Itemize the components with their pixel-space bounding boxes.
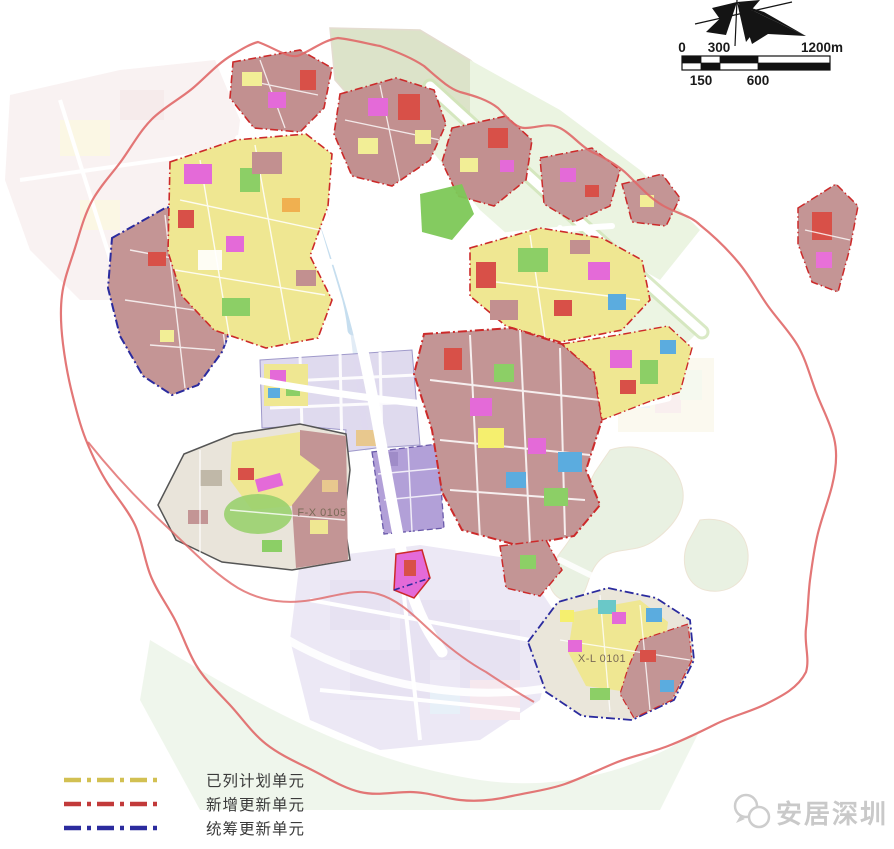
scale-label-150: 150 bbox=[690, 73, 713, 88]
unit-label-fx0105: F-X 0105 bbox=[297, 507, 346, 519]
coordinated-renewal-unit-line-swatch bbox=[60, 822, 164, 834]
scale-label-1200m: 1200m bbox=[801, 40, 843, 55]
new-renewal-unit-line-swatch bbox=[60, 798, 164, 810]
anju-shenzhen-logo-icon bbox=[728, 790, 776, 834]
cluster-far-east bbox=[798, 184, 858, 292]
legend-item-new-renewal-units: 新增更新单元 bbox=[60, 794, 305, 814]
legend-label: 统筹更新单元 bbox=[206, 817, 305, 839]
planning-map: F-X 0105 X-L 0101 0 300 1200m 150 600 bbox=[0, 0, 894, 849]
watermark: 安居深圳 bbox=[728, 790, 888, 834]
urban-renewal-planning-map-page: F-X 0105 X-L 0101 0 300 1200m 150 600 已列 bbox=[0, 0, 894, 849]
legend-item-planned-units: 已列计划单元 bbox=[60, 770, 305, 790]
unit-label-xl0101: X-L 0101 bbox=[578, 653, 626, 665]
legend-item-coordinated-renewal-units: 统筹更新单元 bbox=[60, 818, 305, 838]
scale-label-600: 600 bbox=[747, 73, 770, 88]
scale-label-0: 0 bbox=[678, 40, 686, 55]
watermark-text: 安居深圳 bbox=[776, 794, 888, 831]
planned-unit-line-swatch bbox=[60, 774, 164, 786]
legend-label: 新增更新单元 bbox=[206, 793, 305, 815]
cluster-north-top bbox=[230, 50, 332, 132]
map-legend: 已列计划单元 新增更新单元 统筹更新单元 bbox=[60, 770, 305, 838]
cluster-west-central bbox=[158, 424, 350, 570]
legend-label: 已列计划单元 bbox=[206, 769, 305, 791]
scale-bar: 0 300 1200m 150 600 bbox=[678, 40, 843, 88]
scale-label-300: 300 bbox=[708, 40, 731, 55]
